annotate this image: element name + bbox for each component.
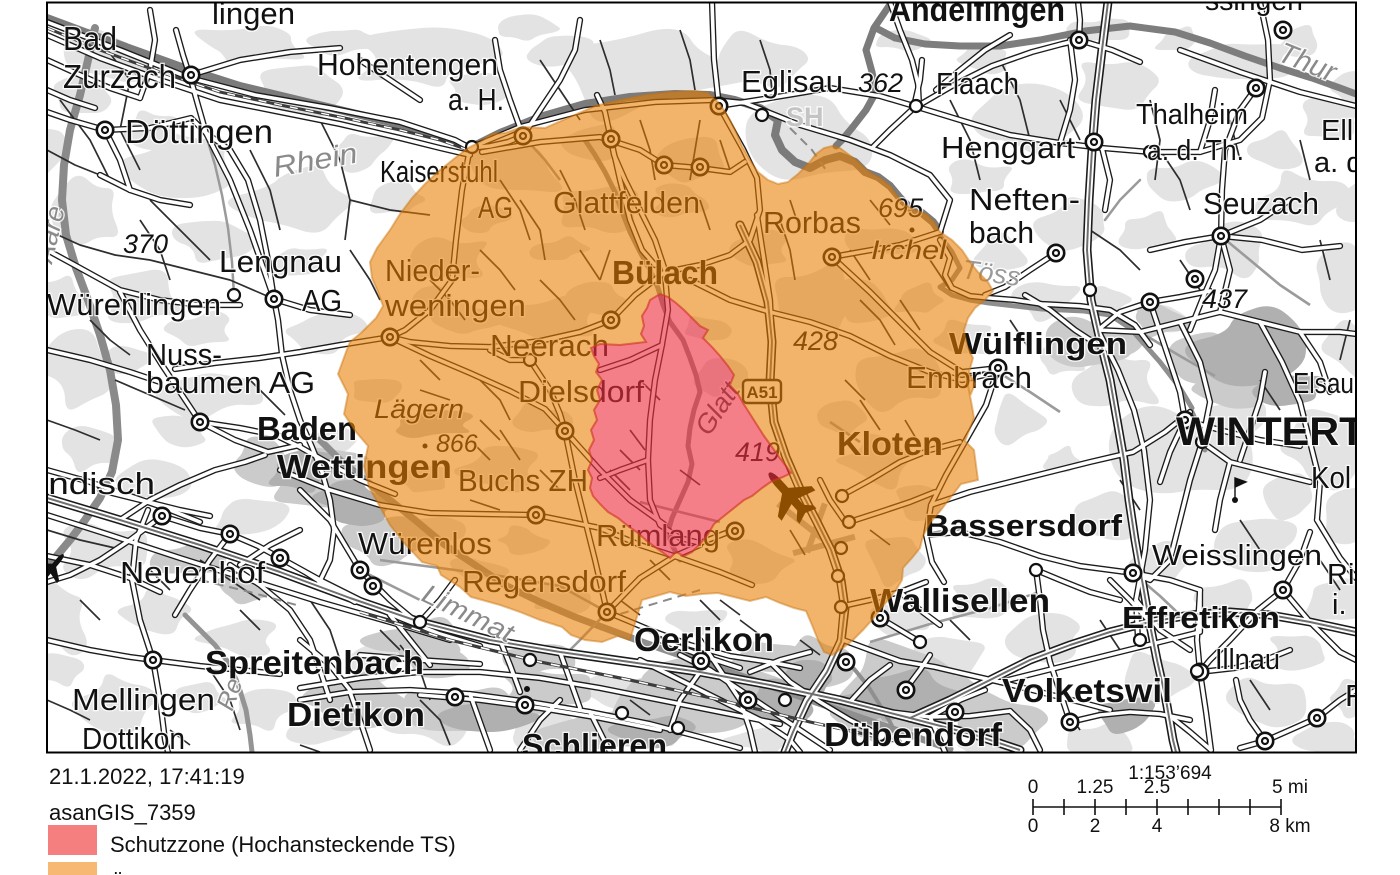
svg-text:Lengnau: Lengnau bbox=[219, 244, 342, 279]
svg-text:2.5: 2.5 bbox=[1144, 777, 1170, 798]
svg-text:437: 437 bbox=[1202, 284, 1248, 314]
svg-text:Volketswil: Volketswil bbox=[1002, 672, 1172, 709]
svg-text:Eglisau: Eglisau bbox=[741, 64, 843, 99]
svg-text:Dübendorf: Dübendorf bbox=[824, 716, 1003, 753]
svg-text:8 km: 8 km bbox=[1269, 816, 1310, 837]
svg-text:a. H.: a. H. bbox=[448, 82, 504, 117]
svg-text:a. d. Th.: a. d. Th. bbox=[1147, 135, 1244, 167]
svg-text:21.1.2022, 17:41:19: 21.1.2022, 17:41:19 bbox=[49, 764, 245, 789]
svg-text:Zurzach: Zurzach bbox=[63, 58, 176, 95]
svg-text:Effretikon: Effretikon bbox=[1122, 600, 1280, 635]
svg-text:Illnau: Illnau bbox=[1215, 644, 1280, 676]
svg-text:Elsau: Elsau bbox=[1293, 368, 1354, 400]
svg-text:Spreitenbach: Spreitenbach bbox=[205, 644, 424, 681]
svg-text:Andelfingen: Andelfingen bbox=[889, 0, 1065, 28]
svg-text:Flaach: Flaach bbox=[936, 66, 1019, 101]
svg-text:lingen: lingen bbox=[212, 0, 295, 31]
svg-text:Dietikon: Dietikon bbox=[287, 696, 425, 733]
svg-text:Seuzach: Seuzach bbox=[1203, 186, 1319, 221]
svg-text:AG: AG bbox=[302, 283, 342, 318]
svg-text:Mellingen: Mellingen bbox=[72, 682, 215, 717]
svg-text:1.25: 1.25 bbox=[1077, 777, 1114, 798]
svg-text:i.: i. bbox=[1332, 589, 1347, 621]
svg-text:Bassersdorf: Bassersdorf bbox=[925, 508, 1123, 543]
svg-text:Thalheim: Thalheim bbox=[1136, 99, 1248, 131]
svg-text:5 mi: 5 mi bbox=[1272, 777, 1308, 798]
svg-text:2: 2 bbox=[1090, 816, 1101, 837]
svg-text:4: 4 bbox=[1152, 816, 1163, 837]
svg-text:baumen AG: baumen AG bbox=[146, 365, 315, 400]
svg-text:Döttingen: Döttingen bbox=[125, 113, 273, 150]
svg-text:0: 0 bbox=[1028, 777, 1039, 798]
svg-text:Wülflingen: Wülflingen bbox=[949, 326, 1127, 361]
svg-text:Oerlikon: Oerlikon bbox=[634, 621, 774, 658]
svg-text:Weisslingen: Weisslingen bbox=[1152, 540, 1322, 572]
svg-text:SH: SH bbox=[786, 102, 824, 132]
svg-text:Elli: Elli bbox=[1321, 115, 1360, 147]
svg-text:Neuenhof: Neuenhof bbox=[120, 555, 265, 590]
svg-text:Neften-: Neften- bbox=[969, 182, 1080, 217]
svg-text:370: 370 bbox=[123, 229, 168, 259]
svg-text:Ri: Ri bbox=[1327, 559, 1354, 591]
svg-text:Dottikon: Dottikon bbox=[82, 721, 185, 756]
svg-text:indisch: indisch bbox=[40, 466, 155, 501]
svg-text:Bad: Bad bbox=[63, 20, 117, 57]
svg-text:Baden: Baden bbox=[257, 410, 357, 447]
svg-text:Henggart: Henggart bbox=[941, 130, 1075, 165]
svg-text:Überwachungszone (Hochanstecke: Überwachungszone (Hochansteckende TS) bbox=[110, 871, 535, 875]
svg-text:bach: bach bbox=[969, 215, 1034, 250]
svg-text:asanGIS_7359: asanGIS_7359 bbox=[49, 800, 196, 825]
svg-text:Schutzzone (Hochansteckende TS: Schutzzone (Hochansteckende TS) bbox=[110, 832, 456, 857]
svg-text:0: 0 bbox=[1028, 816, 1039, 837]
svg-text:362: 362 bbox=[858, 68, 903, 98]
svg-text:Würenlingen: Würenlingen bbox=[47, 287, 221, 322]
svg-text:Hohentengen: Hohentengen bbox=[317, 47, 498, 82]
svg-text:Kol: Kol bbox=[1311, 460, 1351, 495]
